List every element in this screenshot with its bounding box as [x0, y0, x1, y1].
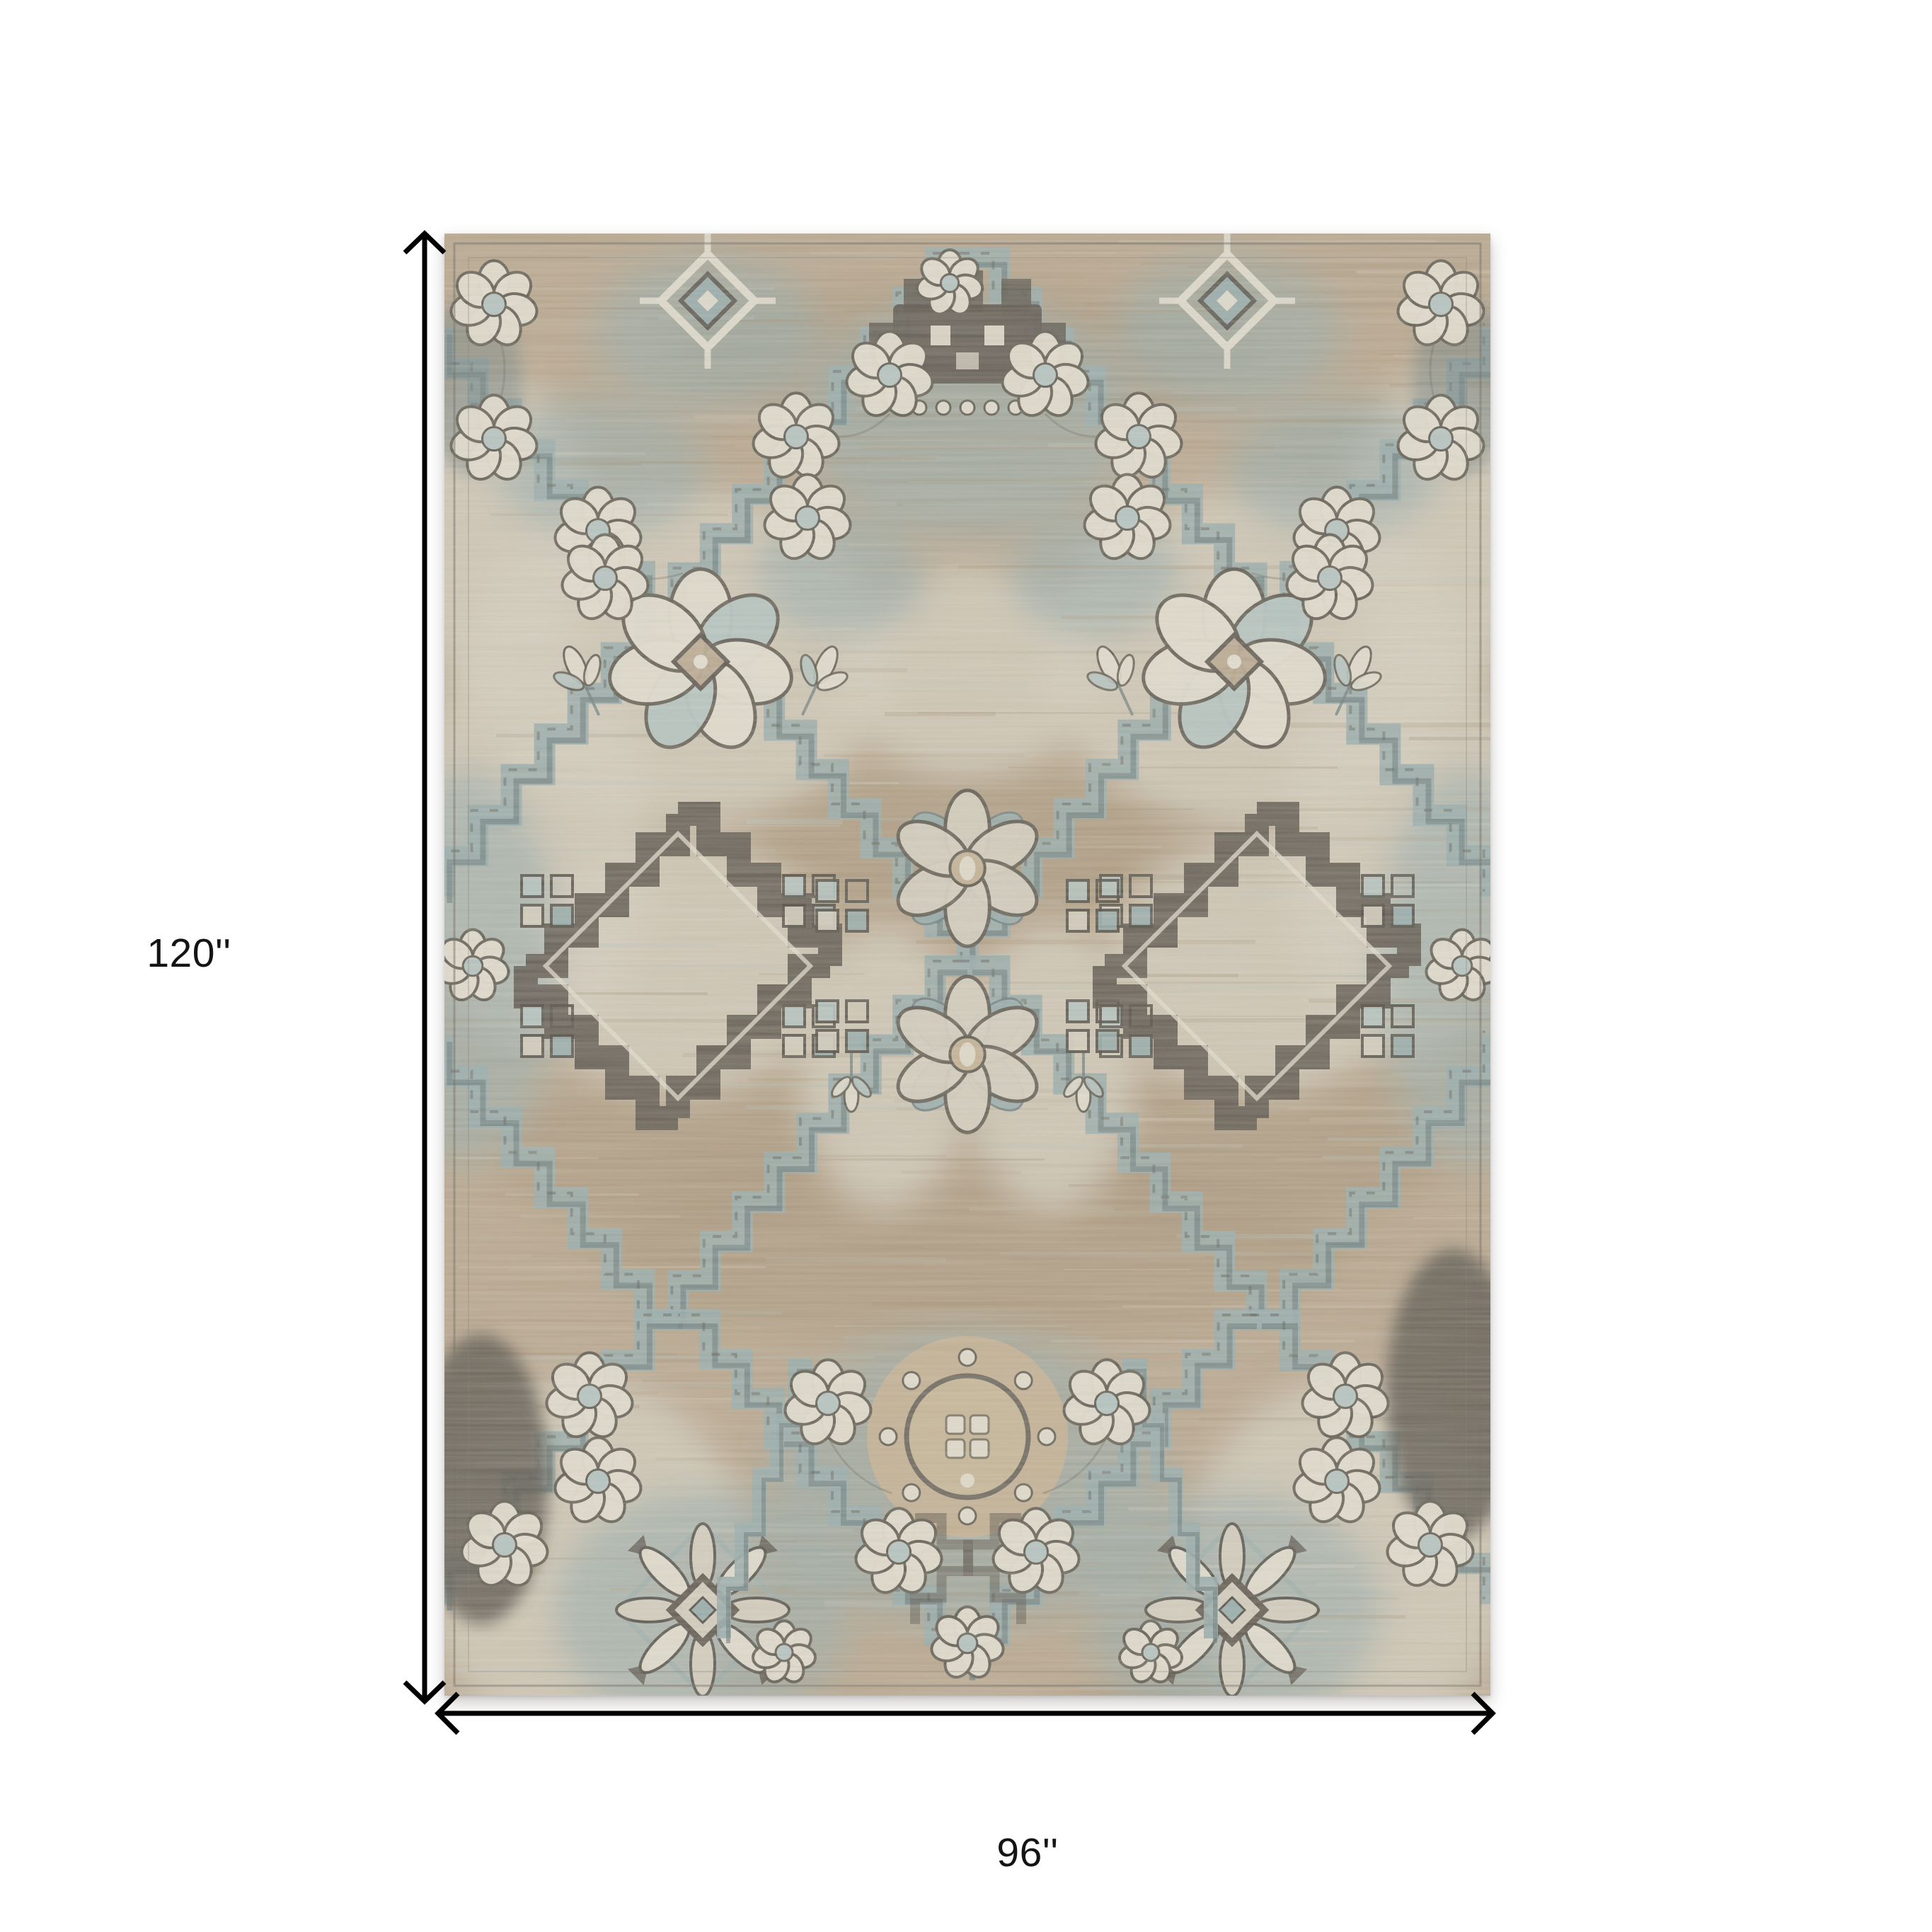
width-arrow: [438, 1694, 1493, 1733]
rug-photo: [444, 234, 1490, 1696]
height-arrow-head-bottom: [405, 1682, 444, 1701]
width-arrow-head-left: [438, 1694, 458, 1733]
width-dimension-label: 96'': [996, 1829, 1058, 1876]
height-arrow: [405, 234, 444, 1701]
height-dimension-label: 120'': [146, 930, 231, 977]
width-arrow-head-right: [1473, 1694, 1493, 1733]
rug-image: [444, 234, 1490, 1696]
product-dimension-diagram: 120'' 96'': [0, 0, 1932, 1932]
height-arrow-head-top: [405, 234, 444, 253]
